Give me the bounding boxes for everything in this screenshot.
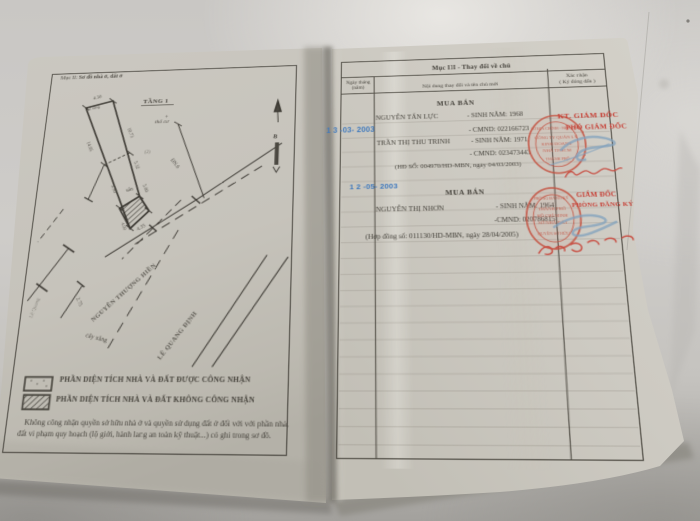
svg-text:GIÁM ĐỐC: GIÁM ĐỐC bbox=[576, 190, 617, 200]
svg-text:4.35: 4.35 bbox=[136, 222, 148, 232]
svg-text:sân: sân bbox=[126, 187, 135, 194]
svg-text:(2): (2) bbox=[144, 149, 151, 154]
svg-text:PHÒNG ĐĂNG KÝ: PHÒNG ĐĂNG KÝ bbox=[533, 195, 569, 201]
svg-text:TẦNG 1: TẦNG 1 bbox=[143, 97, 169, 106]
svg-text:4.30: 4.30 bbox=[93, 94, 103, 101]
svg-text:HỒ CHÍ MINH: HỒ CHÍ MINH bbox=[537, 212, 568, 218]
svg-text:B: B bbox=[273, 134, 279, 141]
svg-text:KT. GIÁM ĐỐC: KT. GIÁM ĐỐC bbox=[557, 111, 619, 121]
svg-text:NGUYỄN THƯỢNG HIỀN: NGUYỄN THƯỢNG HIỀN bbox=[89, 261, 158, 324]
svg-text:cây xăng: cây xăng bbox=[85, 332, 109, 345]
svg-text:PHÓ GIÁM ĐỐC: PHÓ GIÁM ĐỐC bbox=[565, 122, 627, 132]
svg-text:ĐN.6: ĐN.6 bbox=[168, 158, 180, 171]
svg-text:4.00: 4.00 bbox=[120, 222, 128, 231]
svg-text:QUYỀN SỞ HỮU: QUYỀN SỞ HỮU bbox=[537, 230, 570, 236]
svg-text:10.73: 10.73 bbox=[126, 127, 135, 139]
svg-text:NHÀ TP.HCM: NHÀ TP.HCM bbox=[543, 147, 572, 153]
svg-text:LÊ QUANG ĐỊNH: LÊ QUANG ĐỊNH bbox=[155, 309, 200, 361]
svg-text:CÔNG TY QUẢN LÝ: CÔNG TY QUẢN LÝ bbox=[534, 134, 577, 140]
svg-text:Lê Quang: Lê Quang bbox=[28, 296, 41, 318]
svg-text:5.00: 5.00 bbox=[142, 183, 151, 194]
svg-text:PHÒNG ĐĂNG KÝ: PHÒNG ĐĂNG KÝ bbox=[571, 199, 633, 209]
svg-text:14.05: 14.05 bbox=[86, 141, 95, 153]
svg-text:1 tầng: 1 tầng bbox=[89, 104, 100, 112]
svg-text:5.32: 5.32 bbox=[133, 160, 141, 171]
svg-text:+: + bbox=[165, 114, 169, 120]
svg-text:THÀNH PHỐ: THÀNH PHỐ bbox=[538, 206, 566, 212]
svg-text:2.75: 2.75 bbox=[75, 296, 84, 308]
